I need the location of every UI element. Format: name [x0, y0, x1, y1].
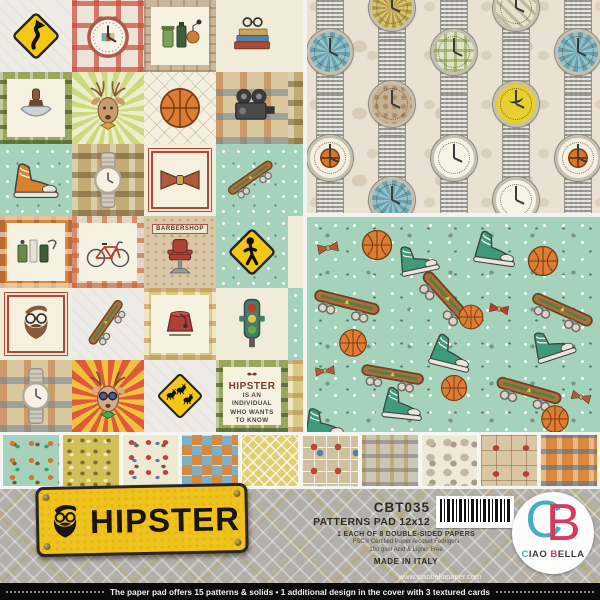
minute-hand [453, 144, 455, 158]
product-title: HIPSTER [90, 501, 241, 537]
brand-letter-b: B [550, 549, 557, 560]
brand-name: CIAO BELLA [521, 549, 584, 560]
product-cover-image: BARBERSHOPHIPSTERIS ANINDIVIDUALWHO WANT… [0, 0, 600, 600]
tile-bow-tie [144, 144, 216, 216]
skateboard-icon [398, 404, 479, 432]
paper-swatch-cream-scatter [122, 434, 180, 487]
wristwatch-icon [79, 151, 137, 209]
hour-hand [454, 51, 463, 57]
watch-face-sepia [369, 81, 415, 127]
tile-watch-edge [288, 0, 303, 72]
basketball-icon [435, 369, 473, 407]
tile-barber-chair: BARBERSHOP [144, 216, 216, 288]
product-pad-line: PATTERNS PAD 12x12 [298, 516, 430, 528]
paper-swatch-squares-collage [301, 434, 359, 487]
bowtie-motif [569, 385, 593, 409]
camera-icon [223, 79, 281, 137]
tile-wristwatch-plaid-2 [0, 360, 72, 432]
tile-skateboard-gray [72, 288, 144, 360]
fsc-line: FSC® Certified Paper Arcoset Fedrigoni [298, 538, 514, 546]
tile-basketball [144, 72, 216, 144]
beard-man-icon [11, 299, 61, 349]
minute-hand [329, 38, 331, 52]
hour-hand [516, 7, 525, 13]
made-in-line: MADE IN ITALY [298, 557, 514, 566]
watch-face-plaid [431, 29, 477, 75]
watches-pattern-panel [307, 0, 600, 213]
tile-panel [151, 295, 209, 353]
paper-swatch-mint-scatter [2, 434, 60, 487]
deer-shades-icon [79, 367, 137, 425]
hour-hand [392, 199, 401, 205]
tile-deer-crossing-sign [144, 360, 216, 432]
bowtie-motif [315, 235, 341, 261]
tile-panel [7, 295, 65, 353]
bowtie-motif [313, 359, 337, 383]
tile-bicycle [72, 216, 144, 288]
minute-hand [329, 144, 331, 158]
hour-hand [578, 51, 587, 57]
wristwatch-motif [369, 135, 415, 213]
deer-icon [79, 79, 137, 137]
tile-cream-edge [288, 216, 303, 288]
tile-deer-sunglasses [72, 360, 144, 432]
hour-hand [454, 157, 463, 163]
watch-face-teal [369, 177, 415, 213]
sports-pattern-panel [307, 217, 600, 432]
barcode-bars [440, 499, 510, 522]
tile-hipster-portrait [0, 288, 72, 360]
books-icon [223, 7, 281, 65]
fez-icon [155, 299, 205, 349]
skateboard-icon [72, 288, 144, 360]
papers-count-line: 1 EACH OF 8 DOUBLE-SIDED PAPERS [298, 531, 514, 538]
watch-face-check [493, 0, 539, 31]
tile-mint-edge [288, 144, 303, 216]
shave-icon [11, 83, 61, 133]
barcode [436, 496, 514, 528]
tile-books-and-glasses [216, 0, 288, 72]
traffic-icon [223, 295, 281, 353]
bottles-icon [155, 11, 205, 61]
watch-face-teal [307, 29, 353, 75]
quote-line: INDIVIDUAL [232, 400, 272, 408]
product-info-block: CBT035 PATTERNS PAD 12x12 1 EACH OF 8 DO… [298, 496, 514, 566]
bowtie-icon [485, 295, 513, 323]
watch-face-white [493, 177, 539, 213]
tile-plaid-edge [288, 72, 303, 144]
quote-line: WHO WANTS [230, 409, 273, 417]
monogram-b: B [546, 497, 581, 549]
screw-icon [43, 543, 50, 550]
minute-hand [515, 90, 517, 104]
dotted-leader [6, 591, 104, 593]
skateboard-icon [216, 144, 288, 216]
skateboard-motif [403, 409, 475, 432]
tile-traffic-light [216, 288, 288, 360]
sign-curve-icon [7, 7, 65, 65]
screw-icon [233, 490, 240, 497]
tile-movie-camera [216, 72, 288, 144]
sneaker-icon [7, 151, 65, 209]
collage-grid: BARBERSHOPHIPSTERIS ANINDIVIDUALWHO WANT… [0, 0, 303, 432]
ciao-bella-logo: C B CIAO BELLA [512, 492, 594, 574]
tile-panel [79, 223, 137, 281]
quote-line: IS AN [243, 392, 262, 400]
bowtie-icon [566, 382, 596, 412]
wristwatch-motif [307, 93, 353, 213]
bowtie-icon [313, 233, 343, 263]
clock-icon [79, 7, 137, 65]
tile-plaid-edge-2 [288, 360, 303, 432]
watch-face-gold [369, 0, 415, 31]
watch-face-bball [307, 135, 353, 181]
hour-hand [392, 103, 401, 109]
tile-mint-edge-2 [288, 288, 303, 360]
tile-skateboard-mint [216, 144, 288, 216]
quote-line: TO KNOW [235, 417, 268, 425]
sneaker-icon [307, 397, 351, 432]
wristwatch-motif [555, 93, 600, 213]
paper-swatch-yellow-diamond [241, 434, 299, 487]
wristwatch-motif [431, 93, 477, 213]
tile-vintage-clock [72, 0, 144, 72]
tile-curve-road-sign [0, 0, 72, 72]
paper-swatch-barber-collage [480, 434, 538, 487]
tile-panel [7, 223, 65, 281]
watch-face-teal [555, 29, 600, 75]
tile-panel [151, 7, 209, 65]
tile-wristwatch-plaid [72, 144, 144, 216]
gsm-line: 190 gsm Acid & Lignin Free [298, 546, 514, 554]
barber-chair-icon [158, 236, 202, 280]
watch-face-bball [555, 135, 600, 181]
basketball-icon [151, 79, 209, 137]
hour-hand [330, 51, 339, 57]
minute-hand [577, 144, 579, 158]
minute-hand [577, 38, 579, 52]
paper-swatch-yellow-scatter [62, 434, 120, 487]
minute-hand [391, 186, 393, 200]
walk-sign-icon [223, 223, 281, 281]
hipster-sign: HIPSTER [35, 483, 248, 557]
tile-cologne-bottles [144, 0, 216, 72]
wristwatch-icon [7, 367, 65, 425]
paper-swatch-orange-plaid [540, 434, 598, 487]
swatch-strip [0, 432, 600, 489]
cb-monogram: C B [525, 494, 580, 550]
bicycle-icon [83, 227, 133, 277]
barbershop-label: BARBERSHOP [152, 224, 208, 234]
tile-hipster-quote: HIPSTERIS ANINDIVIDUALWHO WANTSTO KNOW [216, 360, 288, 432]
bowtie-icon [155, 155, 205, 205]
wristwatch-motif [493, 135, 539, 213]
minute-hand [453, 38, 455, 52]
hour-hand [392, 7, 401, 13]
tile-orange-sneakers [0, 144, 72, 216]
tile-deer-portrait [72, 72, 144, 144]
hour-hand [516, 103, 525, 109]
mustache-icon [242, 367, 262, 381]
tile-shaving-kit [0, 72, 72, 144]
tile-panel: HIPSTERIS ANINDIVIDUALWHO WANTSTO KNOW [223, 367, 281, 425]
brand-letter-c: C [521, 549, 528, 560]
minute-hand [391, 90, 393, 104]
product-sku: CBT035 [298, 501, 430, 516]
watch-face-yellow [493, 81, 539, 127]
paper-swatch-gray-plaid [361, 434, 419, 487]
footer-text: The paper pad offers 15 patterns & solid… [110, 587, 490, 597]
brand-word-part: IAO [529, 549, 547, 560]
dotted-leader [496, 591, 594, 593]
bowtie-motif [487, 297, 511, 321]
website-url: www.ciaobellapaper.com [380, 572, 500, 581]
bowtie-icon [312, 358, 338, 384]
footer-bar: The paper pad offers 15 patterns & solid… [0, 583, 600, 600]
tile-pedestrian-sign [216, 216, 288, 288]
screw-icon [42, 494, 49, 501]
watch-face-white [431, 135, 477, 181]
hour-hand [516, 199, 525, 205]
paper-swatch-watch-scatter [421, 434, 479, 487]
collage-panel: BARBERSHOPHIPSTERIS ANINDIVIDUALWHO WANT… [0, 0, 303, 432]
tile-grooming-bottles [0, 216, 72, 288]
sneaker-motif [307, 397, 351, 432]
deer-sign-icon [151, 367, 209, 425]
tile-panel [151, 151, 209, 209]
paper-swatch-deer-check [181, 434, 239, 487]
tile-panel [7, 79, 65, 137]
minute-hand [515, 186, 517, 200]
tile-fez-hat [144, 288, 216, 360]
brand-word-part: ELLA [558, 549, 585, 560]
quote-title: HIPSTER [229, 381, 276, 392]
basketball-motif [435, 369, 473, 407]
groom-icon [11, 227, 61, 277]
screw-icon [234, 539, 241, 546]
beard-glasses-icon [44, 500, 87, 543]
wristwatch-icon [295, 7, 303, 65]
